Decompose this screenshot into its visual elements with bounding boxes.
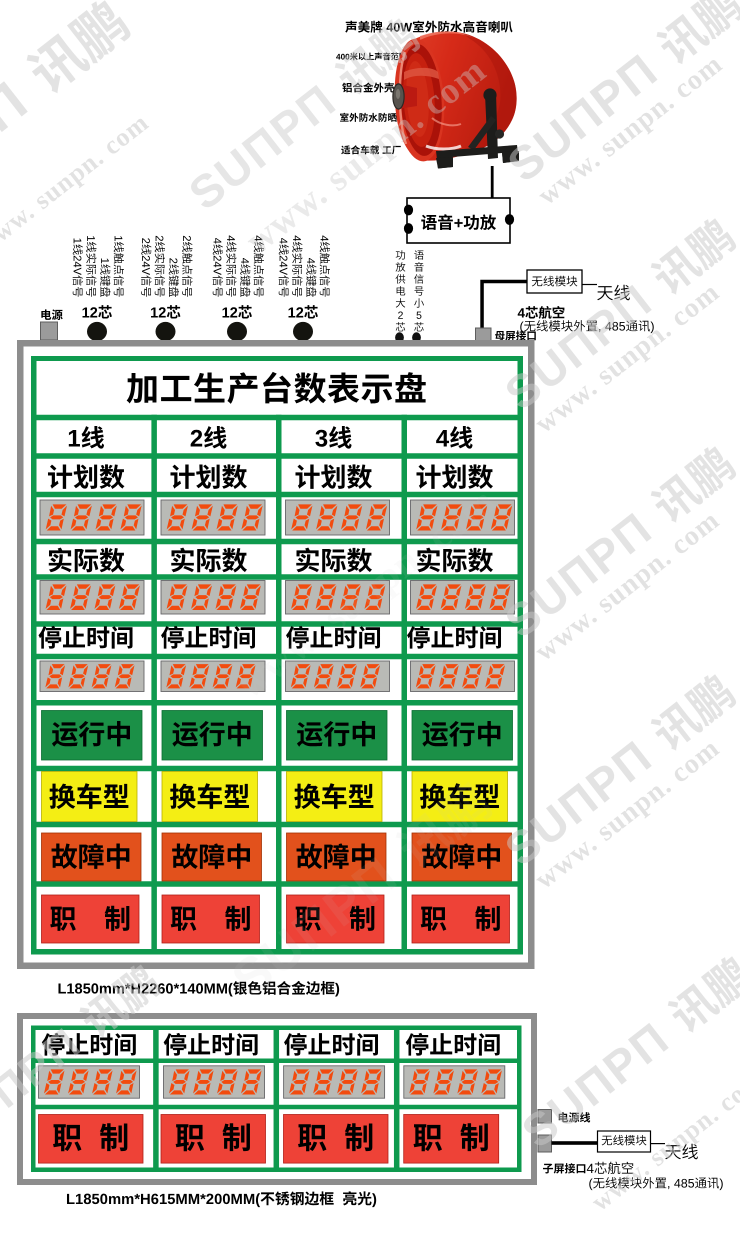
svg-text:SUΠPΠ: SUΠPΠ: [512, 1012, 679, 1158]
